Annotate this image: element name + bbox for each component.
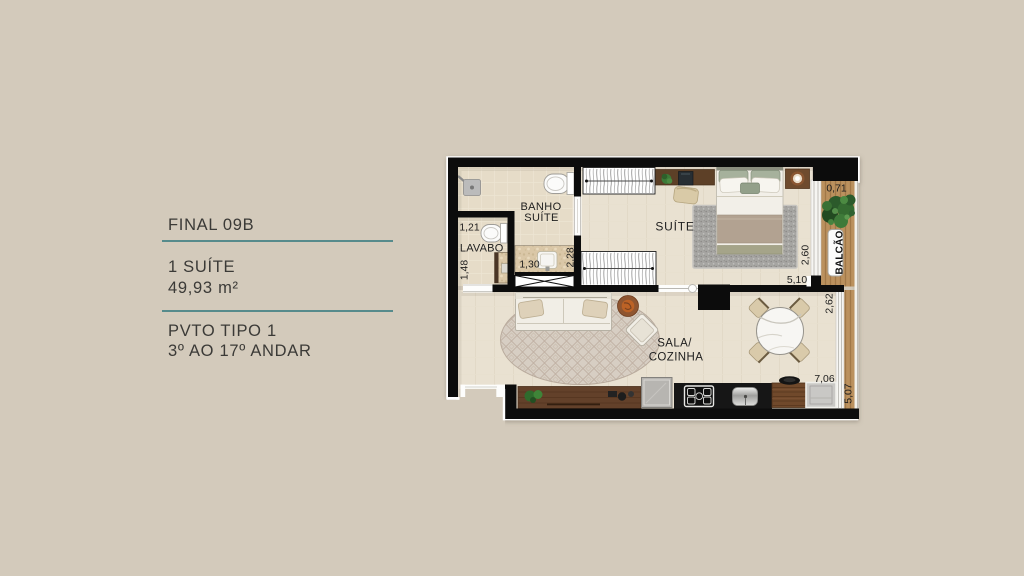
svg-text:1,48: 1,48 [460,260,471,280]
svg-text:SUÍTE: SUÍTE [524,211,558,224]
svg-text:BALCÃO: BALCÃO [832,230,845,274]
svg-text:5,10: 5,10 [787,275,807,286]
svg-text:1,30: 1,30 [519,260,539,271]
svg-text:2,60: 2,60 [801,245,812,265]
svg-text:2,62: 2,62 [825,293,836,313]
svg-text:7,06: 7,06 [814,374,834,385]
svg-text:COZINHA: COZINHA [649,352,704,364]
svg-text:SUÍTE: SUÍTE [655,219,694,234]
svg-text:5,07: 5,07 [844,383,855,403]
svg-text:SALA/: SALA/ [657,337,692,349]
svg-text:2,28: 2,28 [565,247,576,267]
svg-text:1,21: 1,21 [459,223,479,234]
svg-text:LAVABO: LAVABO [460,242,504,254]
svg-text:0,71: 0,71 [826,184,846,195]
